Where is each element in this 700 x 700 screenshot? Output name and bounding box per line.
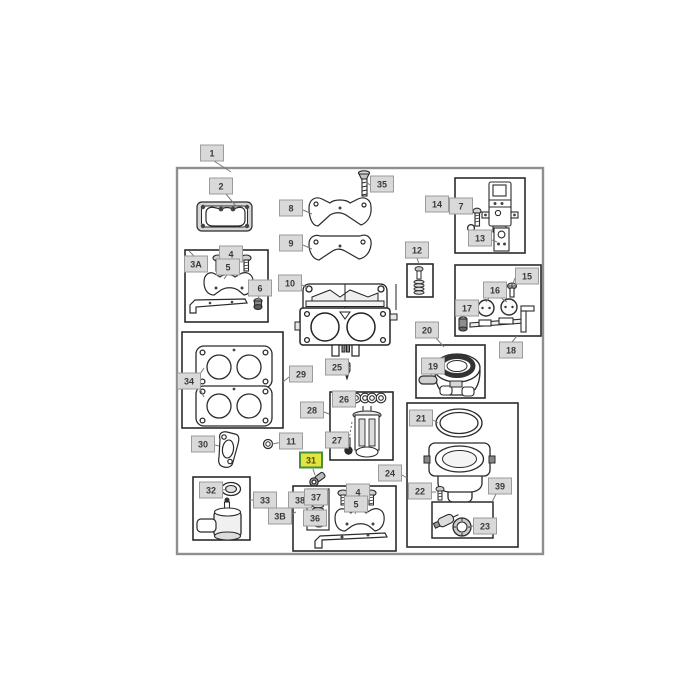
callout-11[interactable]: 11: [279, 433, 303, 450]
callout-31[interactable]: 31: [299, 452, 323, 469]
callout-9[interactable]: 9: [279, 235, 303, 252]
callout-10[interactable]: 10: [278, 275, 302, 292]
callout-2[interactable]: 2: [209, 178, 233, 195]
callout-5-bottom[interactable]: 5: [344, 496, 368, 513]
diagram-canvas: [0, 0, 700, 700]
callout-8[interactable]: 8: [279, 200, 303, 217]
callout-16[interactable]: 16: [483, 282, 507, 299]
callout-36[interactable]: 36: [303, 510, 327, 527]
callout-5-top[interactable]: 5: [216, 259, 240, 276]
callout-19[interactable]: 19: [421, 358, 445, 375]
callout-1[interactable]: 1: [200, 145, 224, 162]
callout-15[interactable]: 15: [515, 268, 539, 285]
callout-3B[interactable]: 3B: [268, 508, 292, 525]
part-intake-gasket: [197, 202, 252, 231]
callout-33[interactable]: 33: [253, 492, 277, 509]
callout-6[interactable]: 6: [248, 280, 272, 297]
callout-37[interactable]: 37: [304, 489, 328, 506]
callout-24[interactable]: 24: [378, 465, 402, 482]
callout-20[interactable]: 20: [415, 322, 439, 339]
callout-29[interactable]: 29: [289, 366, 313, 383]
callout-21[interactable]: 21: [409, 410, 433, 427]
parts-diagram: 123589147133A456101215161718252934282627…: [0, 0, 700, 700]
callout-23[interactable]: 23: [473, 518, 497, 535]
group-idle-screw: [407, 264, 433, 297]
callout-35[interactable]: 35: [370, 176, 394, 193]
callout-13[interactable]: 13: [468, 230, 492, 247]
callout-25[interactable]: 25: [325, 359, 349, 376]
callout-27[interactable]: 27: [325, 432, 349, 449]
callout-32[interactable]: 32: [199, 482, 223, 499]
callout-12[interactable]: 12: [405, 242, 429, 259]
callout-14[interactable]: 14: [425, 196, 449, 213]
callout-28[interactable]: 28: [300, 402, 324, 419]
callout-22[interactable]: 22: [408, 483, 432, 500]
callout-26[interactable]: 26: [332, 391, 356, 408]
callout-34[interactable]: 34: [177, 373, 201, 390]
callout-3A[interactable]: 3A: [184, 256, 208, 273]
callout-18[interactable]: 18: [499, 342, 523, 359]
callout-7[interactable]: 7: [449, 198, 473, 215]
callout-30[interactable]: 30: [191, 436, 215, 453]
callout-39[interactable]: 39: [488, 478, 512, 495]
callout-17[interactable]: 17: [455, 300, 479, 317]
